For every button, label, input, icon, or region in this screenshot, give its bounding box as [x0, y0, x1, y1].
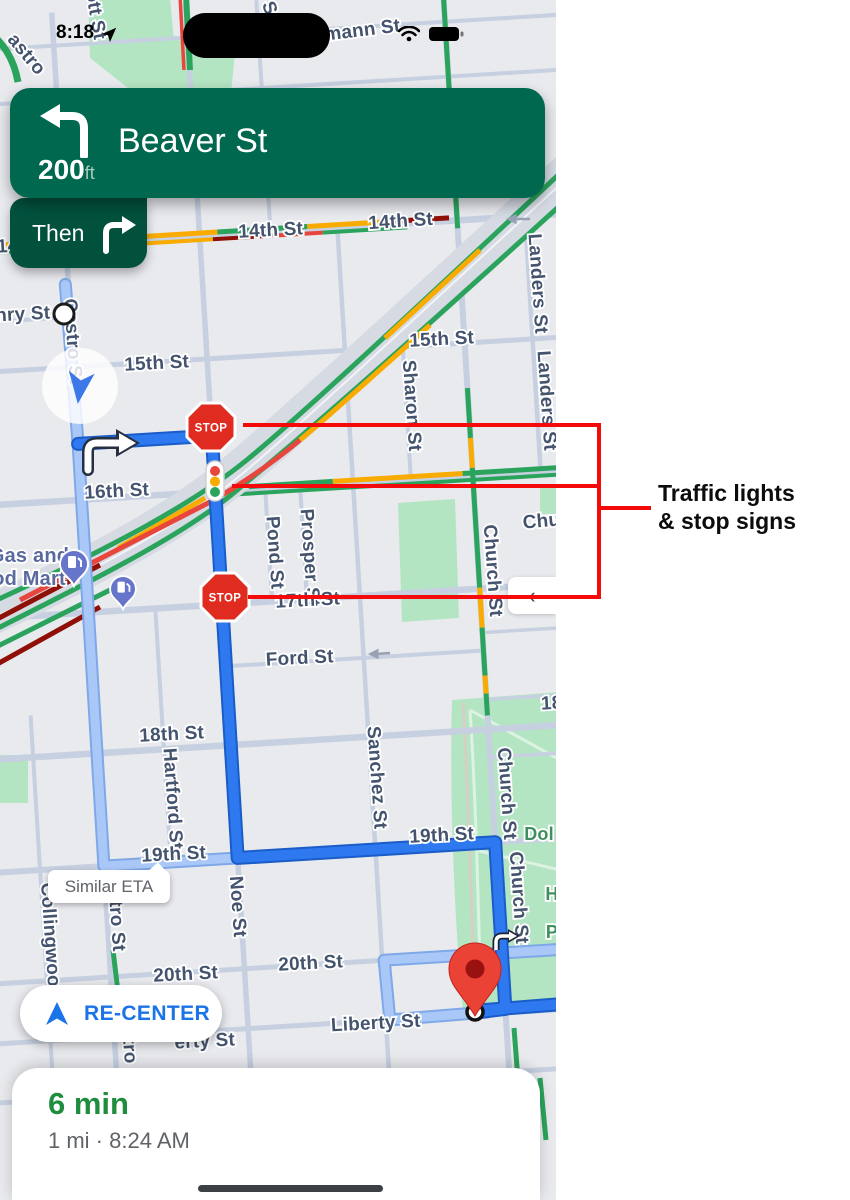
location-active-icon [100, 25, 118, 43]
street-label: 15th St [124, 351, 190, 375]
distance-unit: ft [85, 163, 95, 183]
then-maneuver-chip: Then [10, 198, 147, 268]
park-label: H [545, 884, 556, 904]
trip-eta-card[interactable]: 6 min 1 mi · 8:24 AM [12, 1068, 540, 1200]
poi-label: od Mart [0, 568, 66, 590]
phone-screen: mann Stott StSastro1414th St14th StLande… [0, 0, 556, 1200]
poi-label: Gas and [0, 545, 69, 567]
recenter-label: RE-CENTER [84, 1002, 210, 1026]
turn-right-icon [96, 211, 140, 255]
wifi-icon [398, 26, 420, 42]
trip-distance-arrival: 1 mi · 8:24 AM [48, 1128, 190, 1154]
street-label: Noe St [225, 875, 250, 938]
street-label: 18th St [139, 722, 205, 746]
similar-eta-chip[interactable]: Similar ETA [48, 870, 170, 903]
current-location-indicator [42, 348, 118, 424]
navigation-banner[interactable]: 200ft Beaver St [10, 88, 545, 198]
park-label: Dol [524, 824, 554, 844]
street-label: 19th St [409, 823, 475, 847]
street-label: 19th St [141, 842, 207, 866]
similar-eta-label: Similar ETA [65, 877, 153, 897]
stop-sign-icon: STOP [201, 573, 249, 621]
battery-icon [428, 24, 464, 44]
svg-text:STOP: STOP [195, 423, 228, 435]
screenshot-stage: mann Stott StSastro1414th St14th StLande… [0, 0, 850, 1200]
street-label: 17th St [275, 588, 341, 612]
stop-sign-icon: STOP [187, 403, 235, 451]
street-label: 20th St [278, 951, 344, 975]
street-label: 14th St [238, 218, 304, 242]
callout-connector [601, 506, 651, 510]
street-label: 15th St [409, 327, 475, 351]
street-label: 16th St [84, 479, 150, 503]
navigation-arrow-icon [44, 1001, 70, 1027]
park-label: P [546, 922, 556, 942]
recenter-button[interactable]: RE-CENTER [20, 985, 222, 1042]
street-label: Chu [522, 509, 556, 533]
home-indicator[interactable] [198, 1185, 383, 1192]
then-label: Then [32, 220, 84, 247]
annotation-text: Traffic lights & stop signs [658, 479, 796, 535]
annotation-line-2: & stop signs [658, 507, 796, 535]
callout-bracket-vertical [597, 423, 601, 599]
clock: 8:18 [56, 22, 94, 44]
callout-line-traffic-light [232, 484, 600, 488]
annotation-line-1: Traffic lights [658, 479, 796, 507]
turn-left-icon [36, 102, 96, 158]
street-label: 18 [540, 692, 556, 714]
callout-line-stop-sign-1 [243, 423, 600, 427]
street-label: 20th St [153, 962, 219, 986]
dynamic-island [183, 13, 330, 58]
status-bar: 8:18 [0, 0, 556, 60]
street-label: Ford St [265, 646, 334, 671]
svg-text:STOP: STOP [209, 593, 242, 605]
next-street-name: Beaver St [118, 122, 267, 161]
trip-duration: 6 min [48, 1086, 129, 1122]
route-start-dot [54, 304, 74, 324]
street-label: nry St [0, 303, 51, 327]
distance-to-turn: 200ft [38, 154, 95, 186]
callout-line-stop-sign-2 [248, 595, 600, 599]
traffic-light-icon [206, 461, 224, 501]
